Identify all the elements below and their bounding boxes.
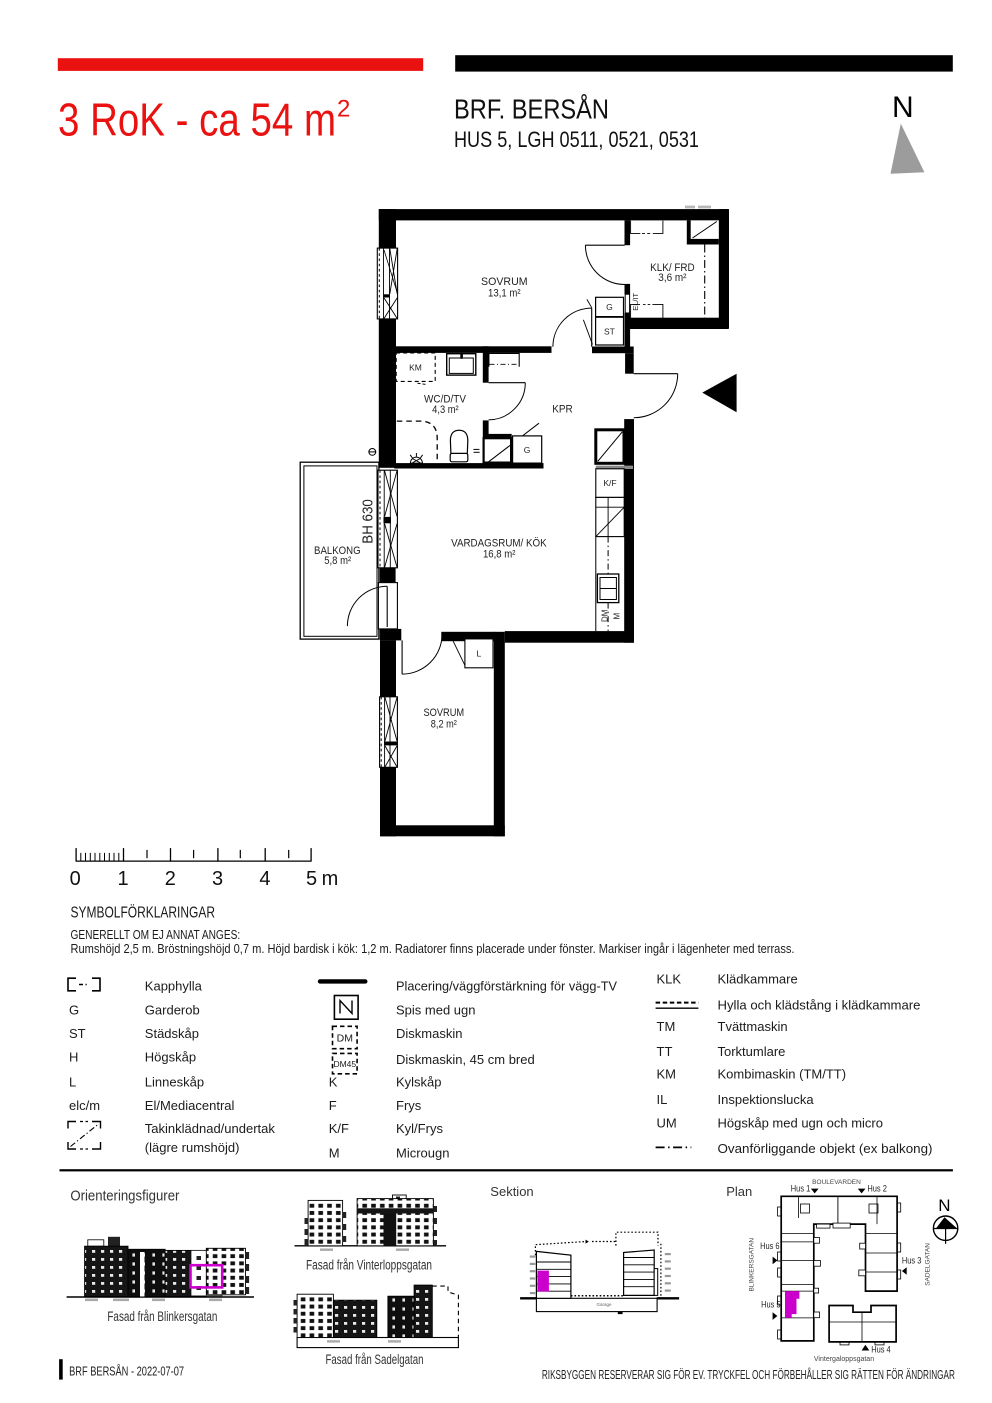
svg-text:N: N [938,1196,950,1215]
svg-text:Rumshöjd 2,5 m. Bröstningshöjd: Rumshöjd 2,5 m. Bröstningshöjd 0,7 m. Hö… [71,942,795,956]
svg-text:Hus 4: Hus 4 [871,1344,891,1355]
svg-text:BLINKERSGATAN: BLINKERSGATAN [749,1238,756,1292]
svg-text:m: m [322,868,339,890]
svg-text:Frys: Frys [396,1098,422,1113]
svg-text:ST: ST [604,327,615,337]
svg-text:8,2 m²: 8,2 m² [431,719,457,731]
svg-text:Klädkammare: Klädkammare [718,972,798,987]
svg-text:UM: UM [657,1116,677,1131]
svg-text:KLK: KLK [657,972,682,987]
svg-text:2: 2 [165,868,176,890]
svg-text:1: 1 [117,868,128,890]
svg-text:3,6 m²: 3,6 m² [658,272,686,284]
svg-text:DM: DM [601,609,610,622]
svg-text:(lägre rumshöjd): (lägre rumshöjd) [145,1140,240,1155]
svg-text:RIKSBYGGEN RESERVERAR SIG FÖR: RIKSBYGGEN RESERVERAR SIG FÖR EV. TRYCKF… [542,1367,955,1382]
svg-text:Plan: Plan [726,1184,752,1199]
svg-text:IL: IL [657,1092,668,1107]
svg-text:Garderob: Garderob [145,1003,200,1018]
svg-text:Takinklädnad/undertak: Takinklädnad/undertak [145,1121,276,1136]
svg-text:L: L [477,648,482,658]
svg-text:TM: TM [657,1019,676,1034]
svg-text:El/Mediacentral: El/Mediacentral [145,1098,235,1113]
svg-text:4: 4 [259,868,270,890]
svg-text:BOULEVARDEN: BOULEVARDEN [812,1179,861,1186]
svg-text:SADELGATAN: SADELGATAN [925,1243,932,1286]
svg-text:Orienteringsfigurer: Orienteringsfigurer [70,1188,179,1204]
svg-text:BRF. BERSÅN: BRF. BERSÅN [454,94,609,125]
svg-text:G: G [69,1003,79,1018]
svg-text:M: M [329,1146,340,1161]
svg-text:K/F: K/F [603,478,616,488]
svg-text:Högskåp: Högskåp [145,1050,196,1065]
svg-text:SYMBOLFÖRKLARINGAR: SYMBOLFÖRKLARINGAR [71,904,216,922]
svg-text:Hus 6: Hus 6 [760,1241,780,1252]
svg-text:Hus 5: Hus 5 [761,1299,781,1310]
svg-text:HUS 5, LGH 0511, 0521, 0531: HUS 5, LGH 0511, 0521, 0531 [454,127,699,152]
svg-text:G: G [524,445,531,455]
svg-text:K: K [329,1075,338,1090]
svg-text:BH 630: BH 630 [361,499,377,544]
svg-text:SOVRUM: SOVRUM [481,276,528,288]
svg-text:DM: DM [337,1033,353,1045]
svg-text:Fasad från Sadelgatan: Fasad från Sadelgatan [326,1352,424,1367]
svg-text:Spis med ugn: Spis med ugn [396,1002,476,1017]
svg-text:SOVRUM: SOVRUM [423,707,464,719]
svg-text:Ovanförliggande objekt (ex ba: Ovanförliggande objekt (ex balkong) [718,1141,933,1156]
svg-text:Garage: Garage [596,1302,612,1307]
svg-text:EL/IT: EL/IT [631,292,640,310]
svg-text:Tvättmaskin: Tvättmaskin [718,1019,788,1034]
svg-text:Hus 1: Hus 1 [791,1184,811,1195]
svg-text:13,1 m²: 13,1 m² [488,287,521,299]
svg-text:KPR: KPR [552,404,573,416]
svg-text:Sektion: Sektion [490,1184,533,1199]
svg-text:elc/m: elc/m [69,1098,100,1113]
svg-text:M: M [613,613,622,620]
svg-text:KM: KM [409,362,422,372]
svg-text:Linneskåp: Linneskåp [145,1075,204,1090]
svg-text:Fasad från Vinterloppsgatan: Fasad från Vinterloppsgatan [306,1258,432,1273]
svg-text:DM45: DM45 [333,1059,356,1069]
svg-text:3 RoK - ca 54 m: 3 RoK - ca 54 m [58,94,336,146]
svg-text:TT: TT [657,1044,673,1059]
svg-text:Fasad från Blinkersgatan: Fasad från Blinkersgatan [107,1309,217,1324]
svg-text:H: H [69,1050,78,1065]
svg-text:KM: KM [657,1067,677,1082]
svg-text:16,8 m²: 16,8 m² [483,548,516,560]
svg-text:Placering/väggförstärkning för: Placering/väggförstärkning för vägg-TV [396,979,617,994]
svg-text:Vintergaloppsgatan: Vintergaloppsgatan [814,1356,874,1363]
svg-text:Microugn: Microugn [396,1146,449,1161]
svg-text:N: N [892,91,914,124]
svg-text:ST: ST [69,1026,86,1041]
svg-text:3: 3 [212,868,223,890]
svg-text:Städskåp: Städskåp [145,1026,199,1041]
svg-text:Inspektionslucka: Inspektionslucka [718,1092,815,1107]
svg-text:G: G [606,302,613,312]
svg-text:Högskåp med ugn och micro: Högskåp med ugn och micro [718,1116,883,1131]
svg-text:4,3 m²: 4,3 m² [432,404,459,416]
svg-text:2: 2 [337,96,350,123]
svg-text:Kylskåp: Kylskåp [396,1075,442,1090]
svg-text:GENERELLT OM EJ ANNAT ANGES:: GENERELLT OM EJ ANNAT ANGES: [71,928,241,942]
svg-text:5: 5 [306,868,317,890]
svg-text:Hus 2: Hus 2 [867,1184,887,1195]
svg-text:Kombimaskin (TM/TT): Kombimaskin (TM/TT) [718,1067,847,1082]
svg-text:L: L [69,1075,76,1090]
svg-text:F: F [329,1098,337,1113]
svg-text:Hylla och klädstång i klädkamm: Hylla och klädstång i klädkammare [718,998,921,1013]
svg-text:Diskmaskin: Diskmaskin [396,1026,462,1041]
svg-text:0: 0 [70,868,81,890]
svg-text:Hus 3: Hus 3 [902,1255,922,1266]
svg-text:Torktumlare: Torktumlare [718,1044,786,1059]
svg-text:BRF BERSÅN - 2022-07-07: BRF BERSÅN - 2022-07-07 [69,1363,184,1378]
svg-text:Kyl/Frys: Kyl/Frys [396,1121,443,1136]
svg-text:Kapphylla: Kapphylla [145,979,203,994]
svg-text:5,8 m²: 5,8 m² [324,555,351,567]
svg-text:K/F: K/F [329,1121,349,1136]
svg-text:Diskmaskin, 45 cm bred: Diskmaskin, 45 cm bred [396,1052,535,1067]
